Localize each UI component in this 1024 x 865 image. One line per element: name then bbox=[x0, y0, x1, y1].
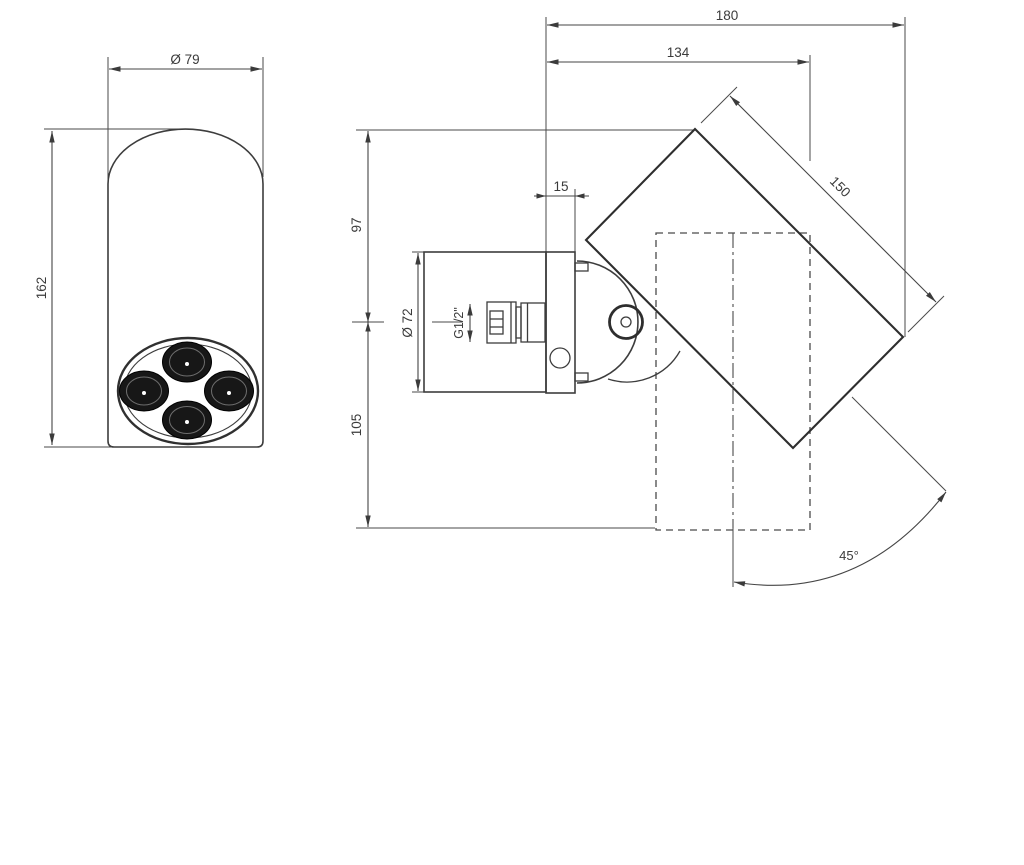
dim-axis-heights: 97 105 bbox=[349, 131, 371, 527]
side-view: 180 134 150 15 97 105 bbox=[349, 8, 946, 587]
dim-label-head-depth: 134 bbox=[667, 45, 690, 60]
dim-label-axis-to-bottom: 105 bbox=[349, 414, 364, 437]
plate-tab-top bbox=[575, 263, 588, 271]
dim-front-diameter: Ø 79 bbox=[109, 52, 262, 69]
ext-line bbox=[908, 296, 944, 332]
nozzle-bottom bbox=[163, 401, 212, 439]
dim-head-depth: 134 bbox=[547, 45, 809, 62]
dim-label-swivel-angle: 45° bbox=[839, 548, 859, 563]
dim-label-plate-thickness: 15 bbox=[553, 179, 568, 194]
dim-front-height: 162 bbox=[34, 131, 52, 445]
plate-screw-hole bbox=[550, 348, 570, 368]
dim-body-diameter: Ø 72 bbox=[400, 253, 418, 391]
dim-total-depth: 180 bbox=[547, 8, 904, 25]
pivot-knob-center bbox=[621, 317, 631, 327]
dim-label-total-depth: 180 bbox=[716, 8, 739, 23]
dim-plate-thickness: 15 bbox=[534, 179, 589, 199]
dim-label-body-diameter: Ø 72 bbox=[400, 308, 415, 337]
technical-drawing: Ø 79 162 bbox=[0, 0, 1024, 865]
dim-label-front-diameter: Ø 79 bbox=[170, 52, 199, 67]
nozzle-left bbox=[120, 371, 169, 411]
dim-label-thread: G1/2" bbox=[452, 307, 466, 339]
drawing-canvas: Ø 79 162 bbox=[0, 0, 1024, 865]
dim-label-front-height: 162 bbox=[34, 277, 49, 300]
ghost-position-outline bbox=[656, 233, 810, 530]
nozzle-right bbox=[205, 371, 254, 411]
ext-line bbox=[701, 87, 737, 123]
thread-fitting bbox=[487, 302, 545, 343]
pivot-dome bbox=[577, 261, 638, 383]
plate-tab-bottom bbox=[575, 373, 588, 381]
dim-label-head-length: 150 bbox=[827, 174, 854, 201]
front-view: Ø 79 162 bbox=[34, 52, 263, 447]
wall-plate bbox=[546, 252, 575, 393]
head-axis-extension bbox=[852, 397, 946, 491]
dim-thread: G1/2" bbox=[452, 304, 470, 342]
nozzle-top bbox=[163, 342, 212, 382]
dim-label-axis-to-top: 97 bbox=[349, 217, 364, 232]
dim-swivel-angle: 45° bbox=[734, 492, 946, 587]
